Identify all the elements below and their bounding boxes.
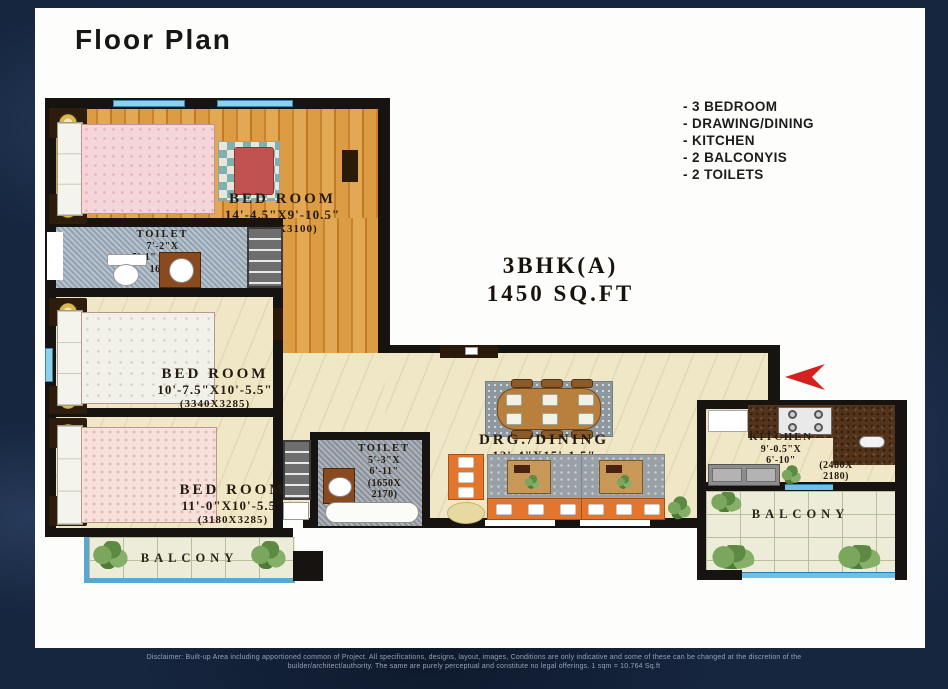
corridor-floor bbox=[283, 218, 378, 353]
refrigerator bbox=[708, 410, 748, 432]
wash-basin-unit bbox=[323, 468, 355, 504]
plant-icon bbox=[524, 475, 540, 489]
door-gap-toilet1 bbox=[47, 232, 63, 280]
plate bbox=[578, 413, 594, 425]
plate bbox=[506, 413, 522, 425]
dining-table bbox=[497, 388, 601, 430]
plate bbox=[542, 413, 558, 425]
burner-icon bbox=[814, 410, 823, 419]
ottoman bbox=[234, 147, 274, 195]
coffee-table bbox=[507, 460, 551, 494]
sofa-cushion bbox=[588, 504, 604, 515]
sofa-vertical bbox=[448, 454, 484, 500]
wash-basin-unit bbox=[159, 252, 201, 288]
sofa-horizontal bbox=[581, 498, 665, 520]
balcony-right-edge bbox=[742, 572, 895, 578]
plant-icon bbox=[781, 465, 801, 485]
disclaimer-line-2: builder/architect/authority. The same ar… bbox=[0, 663, 948, 672]
plate bbox=[506, 394, 522, 406]
bathtub bbox=[325, 502, 419, 523]
disclaimer-line-1: Disclaimer: Built-up Area including appo… bbox=[0, 654, 948, 663]
toilet-bowl bbox=[113, 264, 139, 286]
plate bbox=[578, 394, 594, 406]
wash-basin bbox=[328, 477, 352, 497]
feature-item: - 2 TOILETS bbox=[683, 166, 814, 183]
page-title: Floor Plan bbox=[75, 24, 232, 56]
serving-tray bbox=[606, 465, 622, 473]
wall-toilet2-right bbox=[422, 432, 430, 526]
feature-item: - KITCHEN bbox=[683, 132, 814, 149]
unit-summary: 3BHK(A) 1450 SQ.FT bbox=[443, 252, 678, 308]
dining-chair bbox=[511, 379, 533, 388]
entrance-arrow-icon bbox=[785, 364, 825, 390]
wall-balcony-left-end-block bbox=[293, 551, 323, 581]
wardrobe bbox=[247, 227, 283, 288]
sofa-cushion bbox=[458, 487, 474, 498]
kitchen-mm-label: (2480X 2180) bbox=[795, 460, 877, 483]
round-rug bbox=[447, 502, 485, 524]
window-living-b bbox=[580, 520, 650, 526]
window-bedroom1-b bbox=[217, 100, 293, 107]
wall-bedroom3-bottom bbox=[45, 528, 293, 537]
plan-sheet: Floor Plan bbox=[35, 8, 925, 648]
linen-shelf bbox=[283, 440, 311, 500]
plate bbox=[542, 394, 558, 406]
cabinet-door bbox=[746, 468, 776, 482]
unit-type: 3BHK(A) bbox=[443, 252, 678, 280]
wall-toilet2-top bbox=[310, 432, 430, 440]
door-leaf-bedroom1-right bbox=[342, 150, 358, 182]
sofa-cushion bbox=[616, 504, 632, 515]
sofa-cushion bbox=[560, 504, 576, 515]
toilet2-label: TOILET 5'-3"X 6'-11" bbox=[345, 443, 423, 478]
wash-basin bbox=[169, 258, 194, 283]
feature-item: - 2 BALCONYIS bbox=[683, 149, 814, 166]
dining-chair bbox=[541, 379, 563, 388]
floor-plan-poster: Floor Plan bbox=[0, 0, 948, 689]
wall-balcony-right-bottom-stub bbox=[697, 570, 742, 580]
feature-item: - 3 BEDROOM bbox=[683, 98, 814, 115]
bed-headboard bbox=[57, 425, 83, 525]
bed-headboard bbox=[57, 122, 83, 216]
bed-headboard bbox=[57, 310, 83, 406]
dining-chair bbox=[571, 379, 593, 388]
feature-list: - 3 BEDROOM - DRAWING/DINING - KITCHEN -… bbox=[683, 98, 814, 183]
coffee-table bbox=[599, 460, 643, 494]
burner-icon bbox=[788, 423, 797, 432]
window-living-a bbox=[485, 520, 555, 526]
unit-area: 1450 SQ.FT bbox=[443, 280, 678, 308]
feature-item: - DRAWING/DINING bbox=[683, 115, 814, 132]
sofa-cushion bbox=[458, 472, 474, 483]
window-bedroom2-left bbox=[45, 348, 53, 382]
disclaimer-text: Disclaimer: Built-up Area including appo… bbox=[0, 654, 948, 671]
kitchen-counter-right bbox=[833, 405, 895, 465]
sofa-cushion bbox=[496, 504, 512, 515]
plant-icon bbox=[667, 496, 691, 520]
gas-stove bbox=[778, 407, 832, 435]
utility-box bbox=[283, 502, 309, 520]
door-frame-dining-top bbox=[465, 347, 478, 355]
sofa-cushion bbox=[528, 504, 544, 515]
wall-toilet1-bottom bbox=[45, 288, 283, 297]
burner-icon bbox=[814, 423, 823, 432]
plant-icon bbox=[709, 492, 743, 512]
cabinet-door bbox=[712, 468, 742, 482]
kitchen-sink bbox=[859, 436, 885, 448]
toilet-seat bbox=[107, 254, 147, 288]
plant-icon bbox=[709, 545, 757, 569]
plant-icon bbox=[616, 475, 632, 489]
plant-icon bbox=[91, 541, 129, 569]
sofa-cushion bbox=[644, 504, 660, 515]
sofa-horizontal bbox=[487, 498, 583, 520]
toilet2-mm-label: (1650X 2170) bbox=[347, 478, 422, 501]
plant-icon bbox=[249, 541, 287, 569]
bedroom2-label: BED ROOM 10'-7.5"X10'-5.5" (3340X3285) bbox=[97, 366, 333, 410]
serving-tray bbox=[514, 465, 530, 473]
window-bedroom1-a bbox=[113, 100, 185, 107]
sofa-cushion bbox=[458, 457, 474, 468]
plant-icon bbox=[835, 545, 883, 569]
door-leaf-bedroom2-right bbox=[273, 308, 283, 340]
kitchen-cabinet bbox=[708, 464, 780, 486]
burner-icon bbox=[788, 410, 797, 419]
